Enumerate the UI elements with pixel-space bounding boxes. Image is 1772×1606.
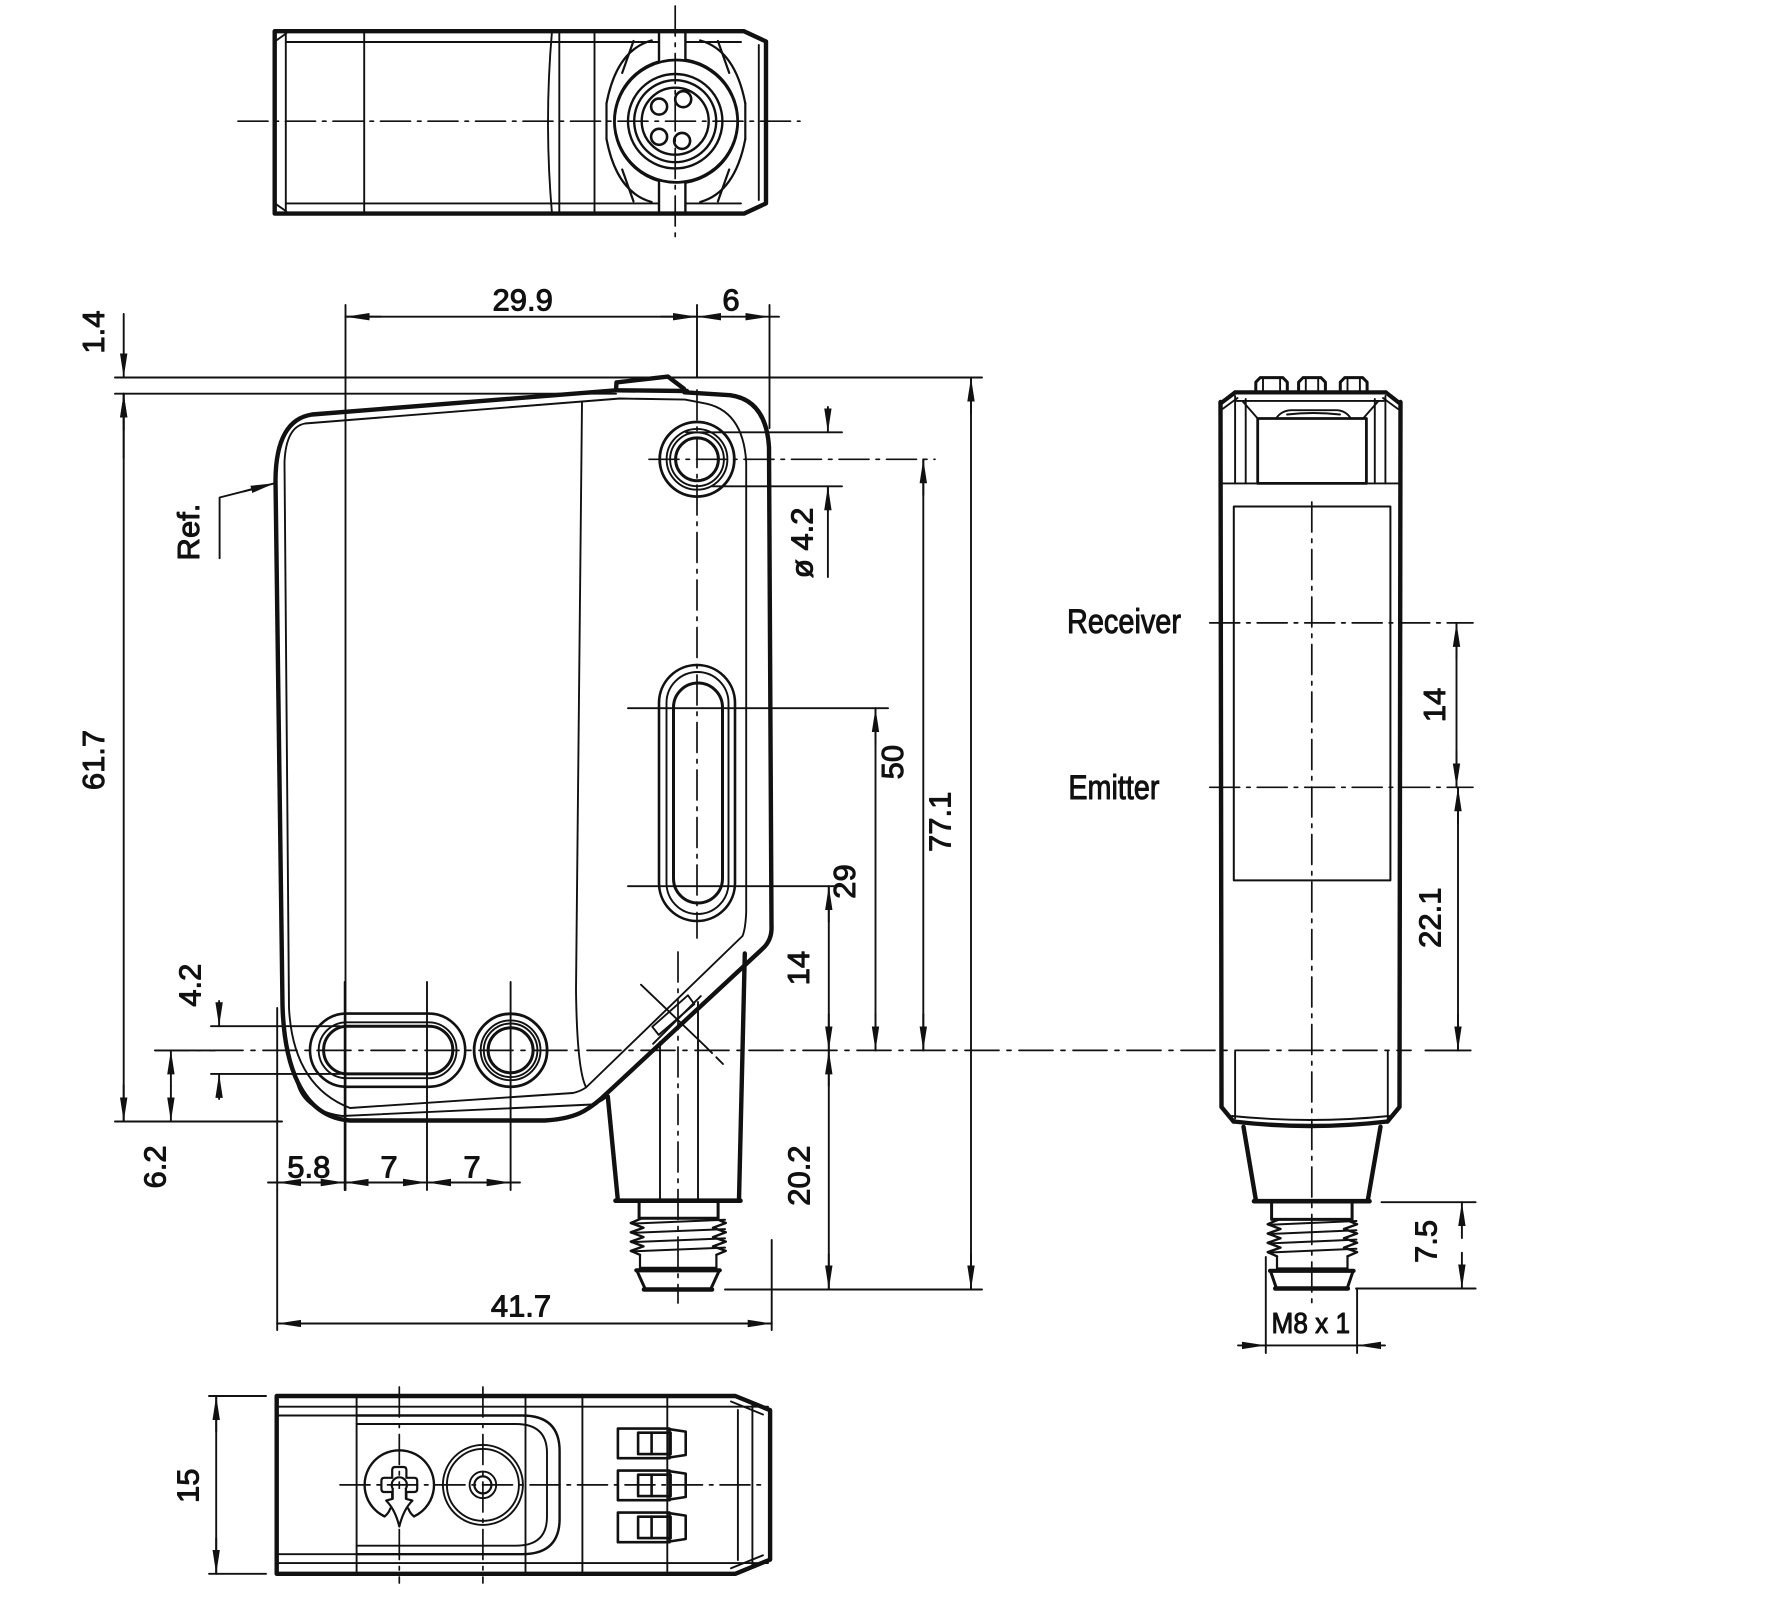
svg-text:Ref.: Ref.	[171, 504, 206, 561]
svg-text:22.1: 22.1	[1412, 888, 1447, 948]
svg-text:15: 15	[171, 1469, 206, 1503]
svg-text:Emitter: Emitter	[1068, 769, 1159, 807]
svg-text:1.4: 1.4	[76, 310, 111, 353]
svg-text:20.2: 20.2	[782, 1145, 817, 1205]
svg-text:29: 29	[827, 864, 862, 898]
svg-text:7: 7	[463, 1150, 480, 1185]
svg-text:14: 14	[1417, 688, 1452, 722]
svg-text:41.7: 41.7	[491, 1289, 551, 1324]
svg-text:7.5: 7.5	[1408, 1220, 1443, 1263]
svg-text:ø 4.2: ø 4.2	[785, 507, 820, 578]
svg-text:4.2: 4.2	[172, 964, 207, 1007]
svg-text:61.7: 61.7	[76, 730, 111, 790]
svg-text:29.9: 29.9	[493, 282, 553, 317]
svg-text:5.8: 5.8	[287, 1150, 330, 1185]
svg-text:6.2: 6.2	[138, 1145, 173, 1188]
svg-text:7: 7	[380, 1150, 397, 1185]
svg-text:M8 x 1: M8 x 1	[1272, 1308, 1351, 1340]
svg-text:77.1: 77.1	[923, 792, 958, 852]
svg-text:Receiver: Receiver	[1067, 603, 1181, 641]
svg-text:6: 6	[722, 282, 739, 317]
svg-text:14: 14	[781, 951, 816, 985]
svg-text:50: 50	[875, 745, 910, 779]
